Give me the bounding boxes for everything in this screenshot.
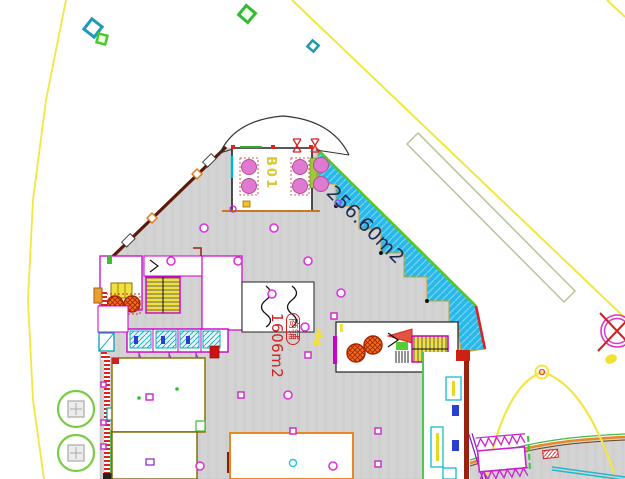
floor-box — [196, 421, 205, 431]
fixture-blue — [452, 440, 459, 451]
wall-node — [271, 145, 275, 149]
landing-block — [396, 342, 408, 350]
column-marker — [167, 257, 175, 265]
wall-block — [333, 336, 337, 364]
column-marker — [337, 289, 345, 297]
wall-node — [309, 145, 313, 149]
plaza-red-hatch-block — [543, 449, 559, 459]
column-marker — [270, 224, 278, 232]
floor-plan-drawing — [0, 0, 625, 479]
wall-marker — [101, 444, 106, 449]
column-marker — [284, 391, 292, 399]
vestibule-label: B01 — [263, 156, 277, 190]
mat-block — [243, 201, 250, 207]
planter-box — [443, 468, 456, 479]
room-b — [230, 433, 353, 479]
spiral-stair-circle — [347, 344, 365, 362]
hall-room-tag: 商铺 — [286, 313, 300, 345]
wall-marker — [101, 382, 106, 387]
yellow-blob — [604, 353, 618, 366]
tree-symbol — [58, 391, 94, 427]
wall-accent-yellow — [340, 324, 343, 332]
spiral-stair-circle — [364, 336, 382, 354]
floor-plan-canvas: 256.60m2 商铺 1606m2 B01 — [0, 0, 625, 479]
east-corridor — [422, 350, 470, 479]
room-a — [112, 432, 197, 479]
wall-node — [112, 358, 119, 364]
floor-marker — [146, 394, 153, 400]
corridor-wall — [464, 352, 469, 479]
large-room — [112, 358, 205, 432]
duct-block — [94, 288, 102, 303]
plot-marker-diamond-green-small — [96, 33, 107, 44]
site-boundary-line-west — [28, 0, 66, 479]
fixture-blue — [452, 405, 459, 416]
column-marker — [196, 462, 204, 470]
wall-accent-green — [107, 256, 112, 264]
core-room — [98, 306, 128, 332]
plot-marker-diamond-green — [239, 6, 256, 23]
wall-node — [231, 145, 235, 149]
plot-marker-diamond-teal-small — [307, 40, 318, 51]
column-marker — [234, 257, 242, 265]
column-square — [375, 461, 381, 467]
site-boundary-line-corner — [607, 0, 625, 17]
column-square — [290, 428, 296, 434]
column-square — [238, 392, 244, 398]
hall-area-value: 1606m2 — [268, 313, 286, 378]
column-square — [375, 428, 381, 434]
shaft-block — [210, 346, 219, 358]
core-room — [202, 256, 242, 330]
wall-block — [456, 350, 470, 361]
column-marker — [200, 224, 208, 232]
column-square — [305, 352, 311, 358]
column-square — [331, 313, 337, 319]
wall-marker — [101, 420, 106, 425]
crossed-circle-symbol — [598, 313, 625, 365]
hall-area-label: 商铺 1606m2 — [269, 313, 303, 378]
column-marker — [304, 257, 312, 265]
tree-symbol — [58, 435, 94, 471]
column-marker — [268, 290, 276, 298]
plaza — [469, 366, 625, 479]
column-marker — [329, 462, 337, 470]
